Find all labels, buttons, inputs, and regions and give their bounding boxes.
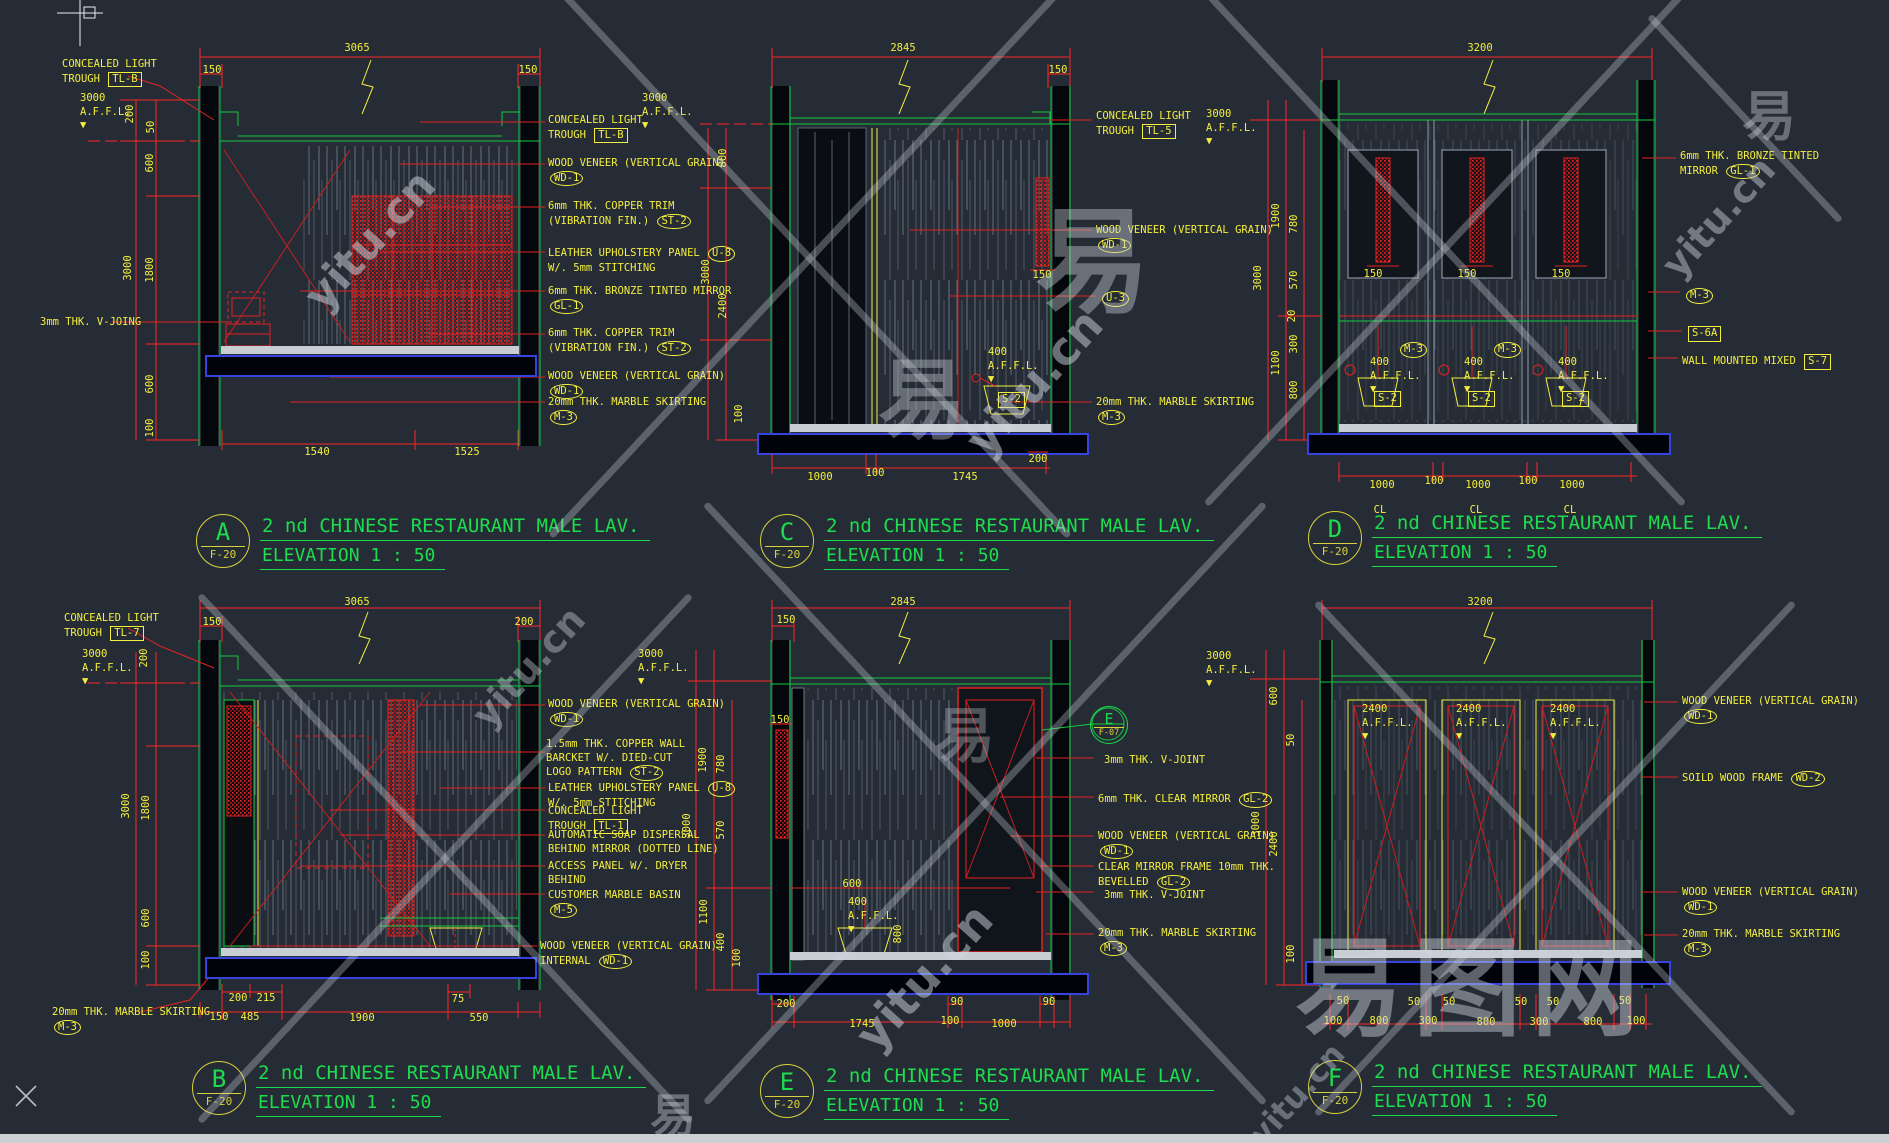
badge-sheet: F-20	[210, 547, 237, 562]
badge-letter: F	[1313, 1066, 1358, 1093]
dimension-label: 50	[1515, 996, 1528, 1008]
annotation-label: 6mm THK. BRONZE TINTED MIRRORGL-1	[548, 285, 731, 314]
dimension-label: 200	[777, 998, 796, 1010]
dimension-label: 50	[1337, 995, 1350, 1007]
dimension-label: 1525	[454, 446, 479, 458]
annotation-label: 3mm THK. V-JOINT	[1104, 754, 1205, 768]
detail-sheet: F-07	[1099, 728, 1119, 738]
title-line1: 2 nd CHINESE RESTAURANT MALE LAV.	[1372, 1062, 1762, 1087]
annotation-label: CUSTOMER MARBLE BASINM-5	[548, 889, 681, 918]
title-block-f: F F-20 2 nd CHINESE RESTAURANT MALE LAV.…	[1308, 1060, 1762, 1121]
elevation-badge-a: A F-20	[196, 514, 250, 568]
dimension-label: 200	[138, 649, 150, 668]
dimension-label: 2845	[890, 42, 915, 54]
dimension-label: 3000	[122, 255, 134, 280]
title-block-d: D F-20 2 nd CHINESE RESTAURANT MALE LAV.…	[1308, 511, 1762, 572]
dimension-label: 200	[1029, 453, 1048, 465]
title-line2: ELEVATION 1 : 50	[1372, 543, 1557, 567]
dimension-label: 20	[1286, 310, 1298, 323]
annotation-label: 3000A.F.F.L.▼	[642, 92, 693, 133]
dimension-label: 3000	[700, 259, 712, 284]
detail-marker-e: E F-07	[1090, 706, 1128, 744]
annotation-label: 6mm THK. COPPER TRIM(VIBRATION FIN.) ST-…	[548, 200, 691, 229]
annotation-label: M-3	[1684, 288, 1713, 304]
dimension-label: 150	[777, 614, 796, 626]
title-block-c: C F-20 2 nd CHINESE RESTAURANT MALE LAV.…	[760, 514, 1214, 575]
annotation-label: U-3	[1100, 291, 1129, 307]
dimension-label: 3000	[1252, 265, 1264, 290]
annotation-label: 400A.F.F.L.▼	[988, 346, 1039, 387]
dimension-label: 1000	[1465, 479, 1490, 491]
annotation-label: SOILD WOOD FRAME WD-2	[1682, 771, 1825, 787]
title-block-e: E F-20 2 nd CHINESE RESTAURANT MALE LAV.…	[760, 1064, 1214, 1125]
dimension-label: 50	[145, 121, 157, 134]
dimension-label: 100	[1627, 1015, 1646, 1027]
annotation-label: WOOD VENEER (VERTICAL GRAIN)WD-1	[1682, 695, 1859, 724]
elevation-badge-e: E F-20	[760, 1064, 814, 1118]
dimension-label: 200	[229, 992, 248, 1004]
annotation-label: 20mm THK. MARBLE SKIRTINGM-3	[1096, 396, 1254, 425]
elevation-badge-d: D F-20	[1308, 511, 1362, 565]
dimension-label: 800	[892, 925, 904, 944]
detail-letter: E	[1094, 712, 1124, 728]
dimension-label: 800	[1477, 1016, 1496, 1028]
dimension-label: 90	[1043, 996, 1056, 1008]
badge-letter: B	[197, 1067, 242, 1094]
annotation-label: S-2	[1372, 391, 1401, 407]
dimension-label: 150	[1458, 268, 1477, 280]
elevation-badge-b: B F-20	[192, 1061, 246, 1115]
dimension-label: 50	[1408, 996, 1421, 1008]
annotation-label: 400A.F.F.L.▼	[848, 896, 899, 937]
annotation-label: 3000A.F.F.L.▼	[1206, 108, 1257, 149]
dimension-label: 150	[210, 1011, 229, 1023]
annotation-label: 2400A.F.F.L.▼	[1550, 703, 1601, 744]
annotation-label: 20mm THK. MARBLE SKIRTINGM-3	[1682, 928, 1840, 957]
dimension-label: 570	[715, 821, 727, 840]
badge-letter: A	[201, 520, 246, 547]
annotation-label: CLEAR MIRROR FRAME 10mm THK.BEVELLED GL-…	[1098, 861, 1275, 890]
dimension-label: 200	[124, 105, 136, 124]
title-line1: 2 nd CHINESE RESTAURANT MALE LAV.	[256, 1063, 646, 1088]
title-block-a: A F-20 2 nd CHINESE RESTAURANT MALE LAV.…	[196, 514, 650, 575]
dimension-label: 1540	[304, 446, 329, 458]
dimension-label: 150	[1033, 269, 1052, 281]
dimension-label: 100	[941, 1015, 960, 1027]
dimension-label: 1800	[144, 257, 156, 282]
dimension-label: 150	[203, 64, 222, 76]
annotation-label: 2400A.F.F.L.▼	[1362, 703, 1413, 744]
annotation-label: WOOD VENEER (VERTICAL GRAIN)WD-1	[1096, 224, 1273, 253]
dimension-label: 215	[257, 992, 276, 1004]
dimension-label: 3065	[344, 42, 369, 54]
annotation-label: CONCEALED LIGHTTROUGH TL-7	[64, 612, 159, 641]
badge-sheet: F-20	[1322, 1093, 1349, 1108]
annotation-label: 3mm THK. V-JOINT	[1104, 889, 1205, 903]
dimension-label: 570	[1288, 271, 1300, 290]
badge-sheet: F-20	[1322, 544, 1349, 559]
annotation-label: 1.5mm THK. COPPER WALLBARCKET W/. DIED-C…	[546, 738, 685, 781]
dimension-label: 100	[731, 949, 743, 968]
elevation-badge-c: C F-20	[760, 514, 814, 568]
annotation-label: CONCEALED LIGHTTROUGH TL-5	[1096, 110, 1191, 139]
annotation-label: ACCESS PANEL W/. DRYERBEHIND	[548, 860, 687, 887]
dimension-label: 2400	[1268, 831, 1280, 856]
dimension-label: 3000	[681, 813, 693, 838]
dimension-label: 1100	[1270, 350, 1282, 375]
annotation-label: WOOD VENEER (VERTICAL GRAIN)WD-1	[548, 157, 725, 186]
dimension-label: 1745	[952, 471, 977, 483]
dimension-label: 300	[1419, 1015, 1438, 1027]
dimension-label: 200	[515, 616, 534, 628]
annotation-label: 3mm THK. V-JOING	[40, 316, 141, 330]
dimension-label: 800	[1370, 1015, 1389, 1027]
annotation-label: 20mm THK. MARBLE SKIRTINGM-3	[548, 396, 706, 425]
dimension-label: 780	[715, 755, 727, 774]
dimension-label: 150	[519, 64, 538, 76]
dimension-label: 150	[1364, 268, 1383, 280]
badge-sheet: F-20	[206, 1094, 233, 1109]
dimension-label: 150	[771, 714, 790, 726]
title-line1: 2 nd CHINESE RESTAURANT MALE LAV.	[824, 516, 1214, 541]
dimension-label: 300	[1288, 335, 1300, 354]
dimension-label: 50	[1619, 995, 1632, 1007]
dimension-label: 100	[140, 951, 152, 970]
dimension-label: 1000	[1369, 479, 1394, 491]
dimension-label: 1100	[698, 899, 710, 924]
dimension-label: 3000	[1250, 811, 1262, 836]
window-bottom-edge	[0, 1134, 1889, 1143]
annotation-label: 3000A.F.F.L.▼	[638, 648, 689, 689]
annotation-label: 20mm THK. MARBLE SKIRTINGM-3	[1098, 927, 1256, 956]
badge-sheet: F-20	[774, 1097, 801, 1112]
annotation-label: 6mm THK. CLEAR MIRROR GL-2	[1098, 792, 1272, 808]
annotation-label: CONCEALED LIGHTTROUGH TL-B	[62, 58, 157, 87]
dimension-label: 2845	[890, 596, 915, 608]
annotation-label: S-6A	[1686, 326, 1721, 342]
dimension-label: 100	[1285, 945, 1297, 964]
dimension-label: 3000	[120, 793, 132, 818]
badge-letter: D	[1313, 517, 1358, 544]
title-line2: ELEVATION 1 : 50	[824, 1096, 1009, 1120]
dimension-label: 3200	[1467, 42, 1492, 54]
annotation-label: S-2	[1466, 391, 1495, 407]
dimension-label: 1900	[1270, 203, 1282, 228]
dimension-label: 600	[140, 909, 152, 928]
dimension-label: 100	[1519, 475, 1538, 487]
dimension-label: 600	[843, 878, 862, 890]
annotation-label: S-2	[996, 392, 1025, 408]
badge-letter: C	[765, 520, 810, 547]
dimension-label: 1800	[140, 795, 152, 820]
annotation-label: CONCEALED LIGHTTROUGH TL-B	[548, 114, 643, 143]
annotation-label: 6mm THK. COPPER TRIM(VIBRATION FIN.) ST-…	[548, 327, 691, 356]
cad-drawing-canvas[interactable]: yitu.cnyitu.cnyitu.cnyitu.cnyitu.cnyitu.…	[0, 0, 1889, 1143]
dimension-label: 1000	[807, 471, 832, 483]
dimension-label: 550	[470, 1012, 489, 1024]
dimension-label: 150	[203, 616, 222, 628]
dimension-label: 1745	[849, 1018, 874, 1030]
annotation-label: 3000A.F.F.L.▼	[82, 648, 133, 689]
badge-sheet: F-20	[774, 547, 801, 562]
title-block-b: B F-20 2 nd CHINESE RESTAURANT MALE LAV.…	[192, 1061, 646, 1122]
annotation-label: 20mm THK. MARBLE SKIRTINGM-3	[52, 1006, 210, 1035]
dimension-label: 50	[1285, 734, 1297, 747]
dimension-label: 100	[733, 405, 745, 424]
annotation-label: WOOD VENEER (VERTICAL GRAIN)WD-1	[548, 370, 725, 399]
dimension-label: 400	[715, 933, 727, 952]
dimension-label: 150	[1552, 268, 1571, 280]
dimension-label: 800	[1288, 381, 1300, 400]
annotation-label: WOOD VENEER (VERTICAL GRAIN)INTERNAL WD-…	[540, 940, 717, 969]
dimension-label: 780	[1288, 215, 1300, 234]
dimension-label: 1900	[349, 1012, 374, 1024]
title-line2: ELEVATION 1 : 50	[256, 1093, 441, 1117]
annotation-label: 6mm THK. BRONZE TINTEDMIRROR GL-1	[1680, 150, 1819, 179]
annotation-label: WOOD VENEER (VERTICAL GRAIN)WD-1	[548, 698, 725, 727]
title-line2: ELEVATION 1 : 50	[1372, 1092, 1557, 1116]
title-line1: 2 nd CHINESE RESTAURANT MALE LAV.	[824, 1066, 1214, 1091]
dimension-label: 1000	[1559, 479, 1584, 491]
dimension-label: 600	[144, 154, 156, 173]
dimension-label: 50	[1443, 996, 1456, 1008]
dimension-label: 100	[144, 419, 156, 438]
dimension-label: 50	[1547, 996, 1560, 1008]
title-line2: ELEVATION 1 : 50	[260, 546, 445, 570]
annotation-label: WOOD VENEER (VERTICAL GRAIN)WD-1	[1098, 830, 1275, 859]
annotation-label: 3000A.F.F.L.▼	[1206, 650, 1257, 691]
dimension-label: 3200	[1467, 596, 1492, 608]
dimension-label: 75	[452, 993, 465, 1005]
dimension-label: 100	[1324, 1015, 1343, 1027]
annotation-label: 3000A.F.F.L.▼	[80, 92, 131, 133]
badge-letter: E	[765, 1070, 810, 1097]
dimension-label: 90	[951, 996, 964, 1008]
dimension-label: 800	[717, 149, 729, 168]
dimension-label: 2400	[717, 293, 729, 318]
dimension-label: 300	[1530, 1016, 1549, 1028]
dimension-label: 1900	[697, 747, 709, 772]
dimension-label: 150	[1049, 64, 1068, 76]
annotation-label: 2400A.F.F.L.▼	[1456, 703, 1507, 744]
dimension-label: 3065	[344, 596, 369, 608]
annotation-label: AUTOMATIC SOAP DISPERSALBEHIND MIRROR (D…	[548, 829, 719, 856]
annotation-label: WOOD VENEER (VERTICAL GRAIN)WD-1	[1682, 886, 1859, 915]
dimension-label: 485	[241, 1011, 260, 1023]
dimension-label: 1000	[991, 1018, 1016, 1030]
dimension-label: 600	[1268, 687, 1280, 706]
annotation-label: S-2	[1560, 391, 1589, 407]
annotation-label: WALL MOUNTED MIXED S-7	[1682, 354, 1831, 370]
dimension-label: 600	[144, 375, 156, 394]
dimension-label: 100	[866, 467, 885, 479]
title-line2: ELEVATION 1 : 50	[824, 546, 1009, 570]
dimension-label: 100	[1425, 475, 1444, 487]
elevation-badge-f: F F-20	[1308, 1060, 1362, 1114]
title-line1: 2 nd CHINESE RESTAURANT MALE LAV.	[260, 516, 650, 541]
dimension-label: 800	[1584, 1016, 1603, 1028]
title-line1: 2 nd CHINESE RESTAURANT MALE LAV.	[1372, 513, 1762, 538]
